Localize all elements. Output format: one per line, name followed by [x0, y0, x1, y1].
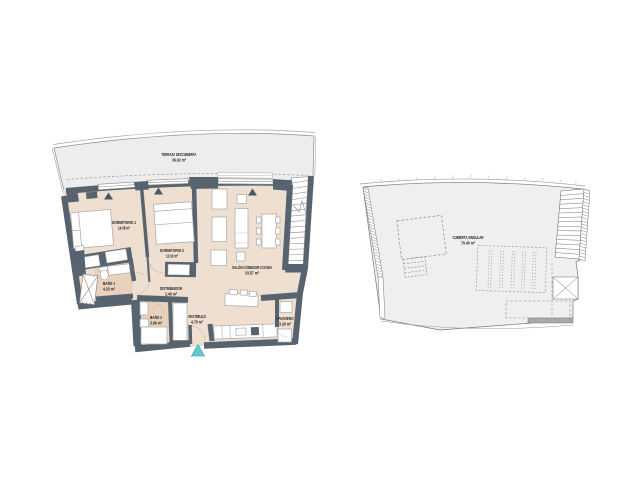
- svg-text:4.23 m²: 4.23 m²: [103, 287, 115, 292]
- svg-text:VESTÍBULO: VESTÍBULO: [188, 314, 206, 319]
- svg-text:BAÑO 1: BAÑO 1: [103, 281, 115, 286]
- svg-text:12.02 m²: 12.02 m²: [166, 254, 178, 259]
- svg-text:DORMITORIO 1: DORMITORIO 1: [112, 220, 136, 225]
- svg-text:4.70 m²: 4.70 m²: [191, 320, 203, 325]
- svg-text:36.02 m²: 36.02 m²: [172, 158, 186, 163]
- svg-text:3.29 m²: 3.29 m²: [279, 322, 291, 327]
- svg-text:LAVADERO: LAVADERO: [277, 316, 294, 321]
- svg-text:2.40 m²: 2.40 m²: [165, 292, 177, 297]
- svg-text:33.57 m²: 33.57 m²: [245, 271, 259, 276]
- svg-text:DORMITORIO 2: DORMITORIO 2: [160, 248, 184, 253]
- svg-text:CUBIERTA SINGULAR: CUBIERTA SINGULAR: [453, 235, 485, 240]
- svg-text:BAÑO 2: BAÑO 2: [150, 315, 162, 320]
- svg-text:DISTRIBUIDOR: DISTRIBUIDOR: [160, 286, 183, 291]
- svg-text:TERRAZA DESCUBIERTA: TERRAZA DESCUBIERTA: [162, 152, 198, 157]
- svg-text:14.08 m²: 14.08 m²: [118, 226, 130, 231]
- svg-text:SALÓN-COMEDOR-COCINA: SALÓN-COMEDOR-COCINA: [232, 265, 273, 270]
- svg-text:3.96 m²: 3.96 m²: [150, 321, 162, 326]
- svg-text:70.40 m²: 70.40 m²: [461, 241, 475, 246]
